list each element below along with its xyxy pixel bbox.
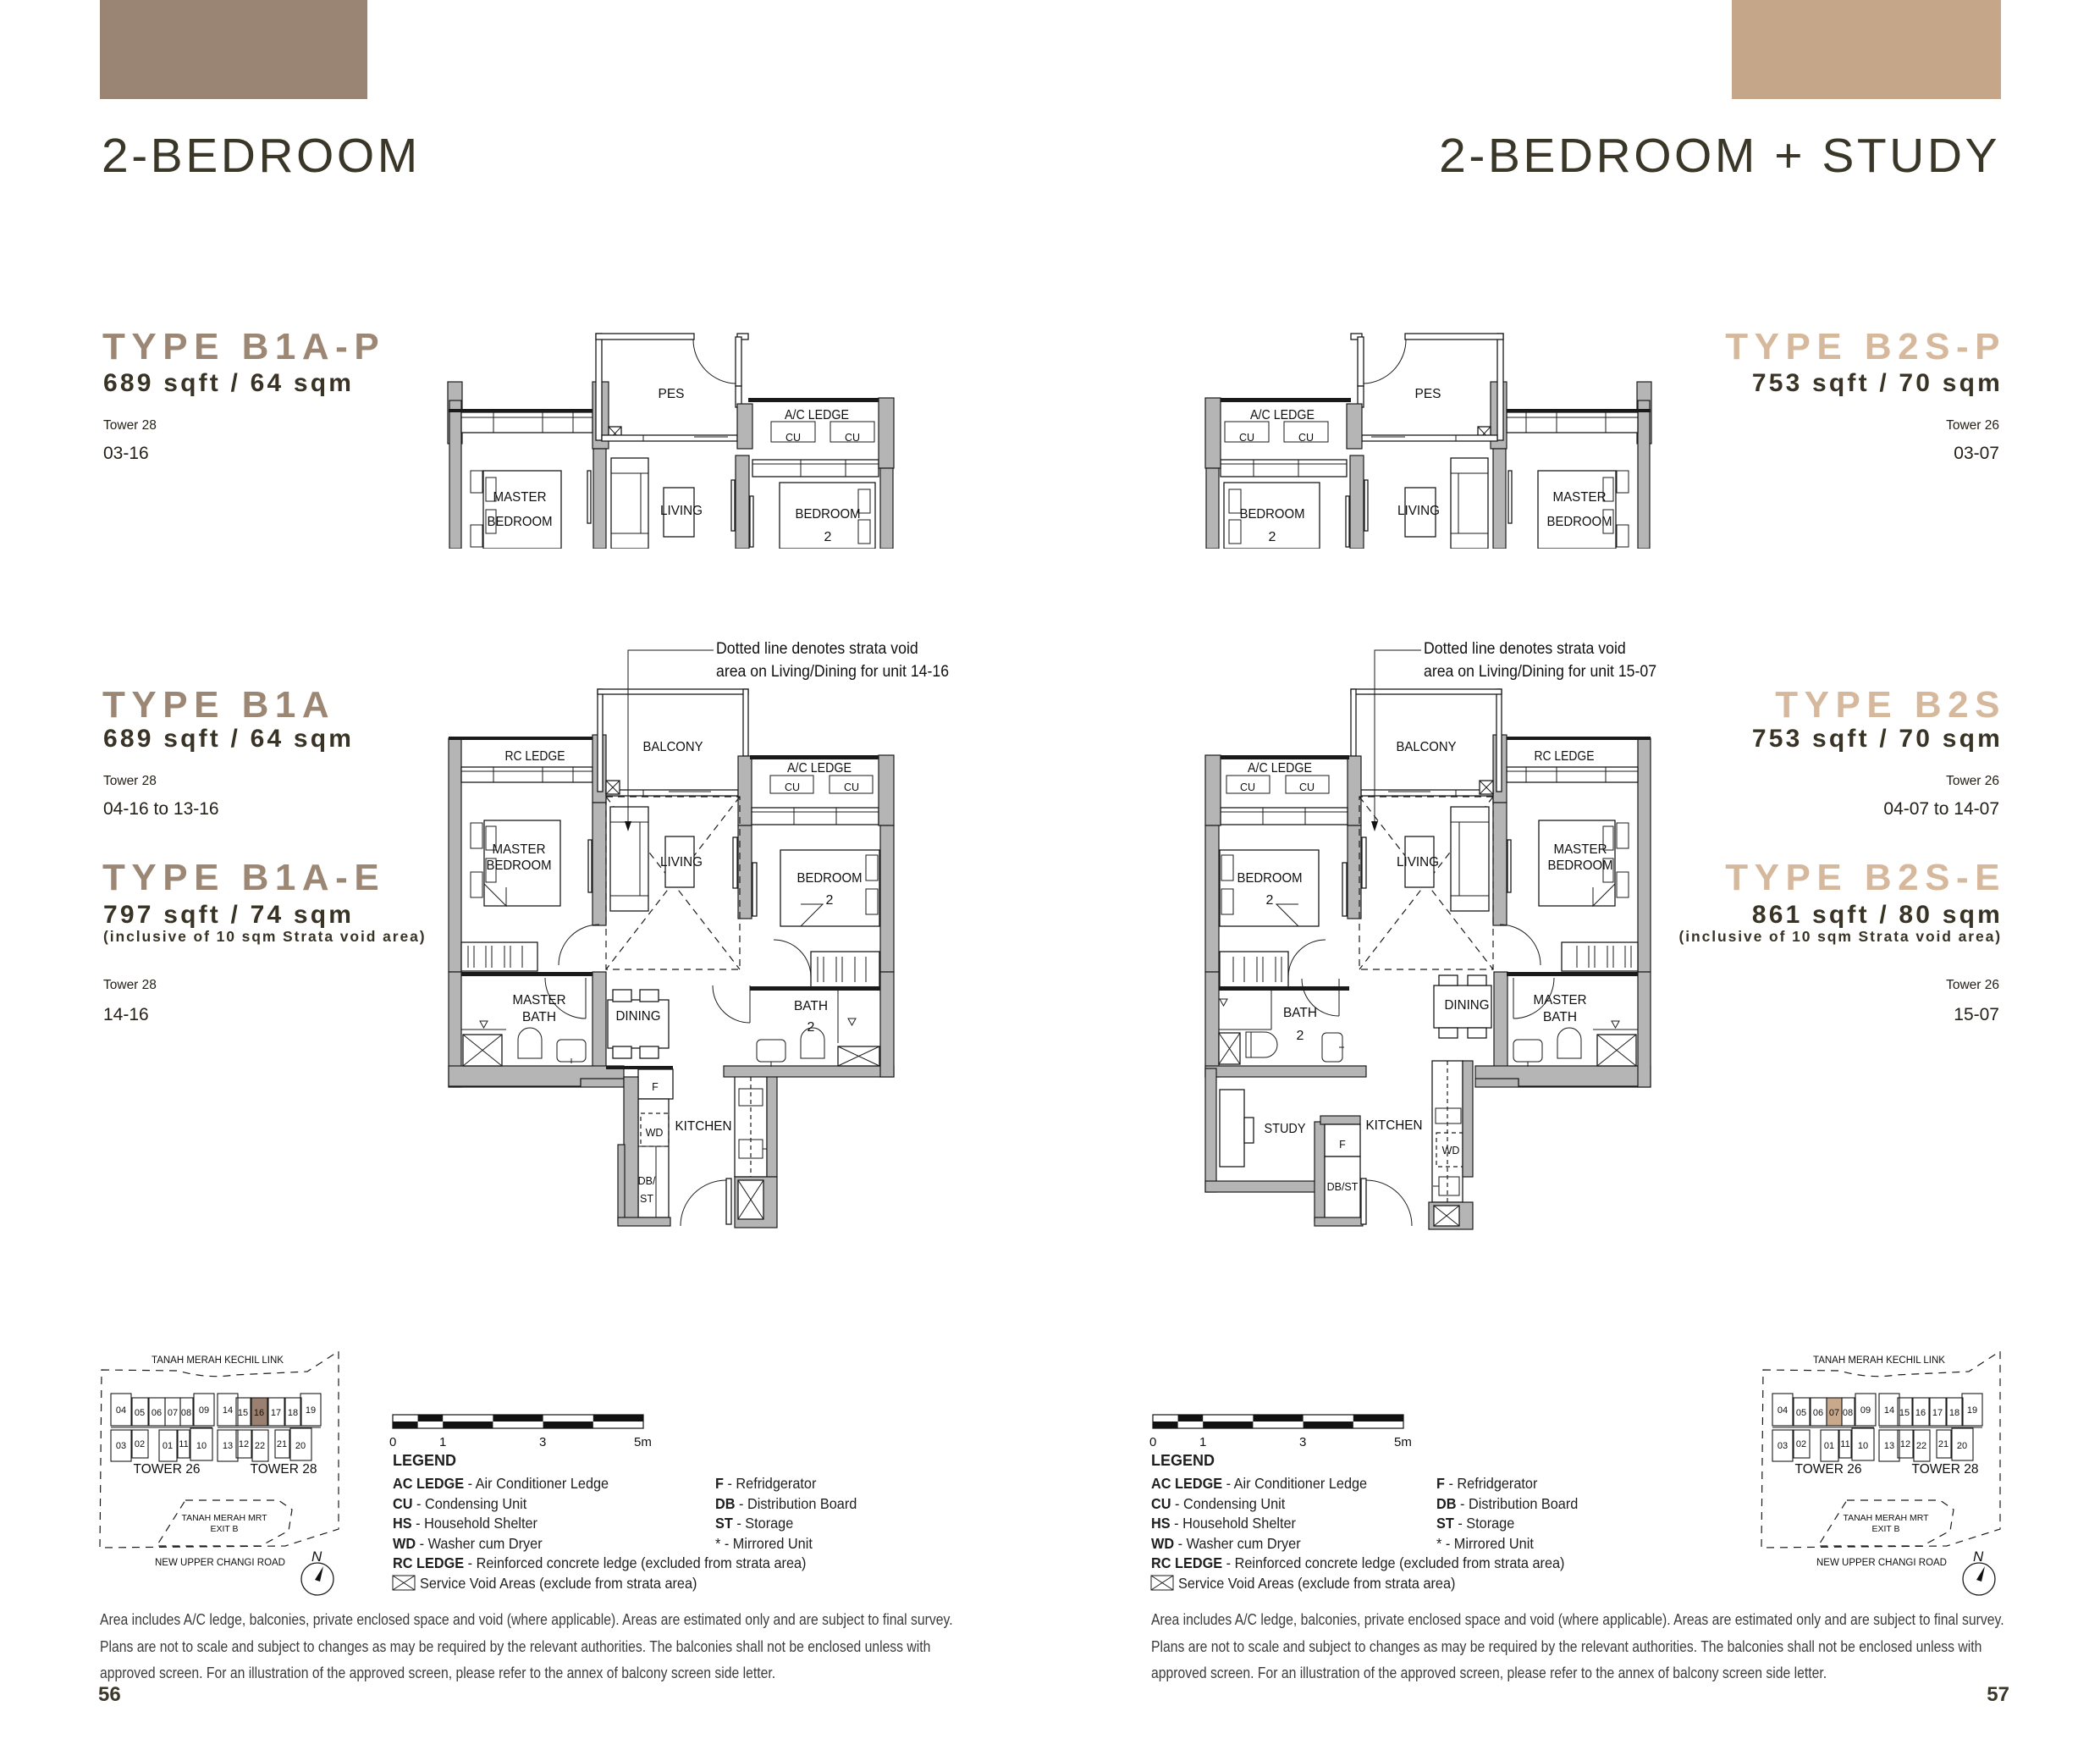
svg-text:KITCHEN: KITCHEN [1366,1118,1423,1133]
svg-text:A/C LEDGE: A/C LEDGE [787,761,852,776]
svg-text:BALCONY: BALCONY [1397,740,1457,754]
svg-text:MASTER: MASTER [513,993,566,1007]
svg-text:A/C LEDGE: A/C LEDGE [1248,761,1312,776]
svg-text:CU: CU [785,432,801,444]
svg-text:BEDROOM: BEDROOM [488,515,553,529]
svg-text:PES: PES [659,387,685,401]
svg-text:CU: CU [785,781,800,793]
svg-text:2: 2 [807,1020,815,1035]
svg-text:BATH: BATH [1283,1006,1317,1020]
svg-text:PES: PES [1415,387,1441,401]
svg-text:WD: WD [1442,1145,1460,1157]
svg-text:DINING: DINING [1445,998,1490,1013]
svg-text:BEDROOM: BEDROOM [487,858,552,873]
svg-text:CU: CU [1240,781,1255,793]
svg-text:CU: CU [1298,432,1314,444]
svg-text:BEDROOM: BEDROOM [1240,507,1305,522]
svg-text:LIVING: LIVING [1397,855,1439,869]
svg-text:CU: CU [1239,432,1254,444]
svg-text:DB/: DB/ [638,1175,656,1187]
svg-text:2: 2 [1297,1029,1304,1043]
svg-text:MASTER: MASTER [1554,842,1607,857]
svg-text:LIVING: LIVING [660,504,703,518]
svg-text:2: 2 [1266,893,1274,908]
svg-text:DINING: DINING [616,1009,661,1024]
svg-text:BEDROOM: BEDROOM [1548,858,1613,873]
svg-text:MASTER: MASTER [1553,490,1607,505]
svg-text:BALCONY: BALCONY [643,740,703,754]
svg-text:WD: WD [646,1127,664,1139]
svg-text:A/C LEDGE: A/C LEDGE [785,408,849,422]
svg-text:CU: CU [1299,781,1315,793]
svg-text:BEDROOM: BEDROOM [1237,871,1303,886]
svg-text:F: F [652,1081,659,1093]
svg-text:ST: ST [640,1193,653,1205]
svg-text:RC LEDGE: RC LEDGE [1535,749,1595,764]
svg-text:BATH: BATH [794,999,828,1013]
svg-text:STUDY: STUDY [1265,1122,1306,1136]
svg-text:CU: CU [845,432,860,444]
svg-text:MASTER: MASTER [493,842,546,857]
svg-text:MASTER: MASTER [493,490,547,505]
svg-text:LIVING: LIVING [660,855,703,869]
svg-text:LIVING: LIVING [1397,504,1440,518]
svg-text:BATH: BATH [522,1010,556,1024]
svg-text:2: 2 [826,893,834,908]
svg-text:DB/ST: DB/ST [1327,1181,1359,1193]
svg-text:CU: CU [844,781,859,793]
svg-text:BEDROOM: BEDROOM [797,871,863,886]
svg-text:A/C LEDGE: A/C LEDGE [1250,408,1315,422]
svg-text:2: 2 [824,530,832,544]
svg-text:MASTER: MASTER [1534,993,1587,1007]
svg-text:BATH: BATH [1543,1010,1577,1024]
svg-text:KITCHEN: KITCHEN [675,1119,732,1134]
svg-text:F: F [1339,1139,1346,1151]
svg-text:BEDROOM: BEDROOM [796,507,861,522]
svg-text:BEDROOM: BEDROOM [1547,515,1612,529]
svg-text:RC LEDGE: RC LEDGE [505,749,565,764]
svg-text:2: 2 [1269,530,1276,544]
